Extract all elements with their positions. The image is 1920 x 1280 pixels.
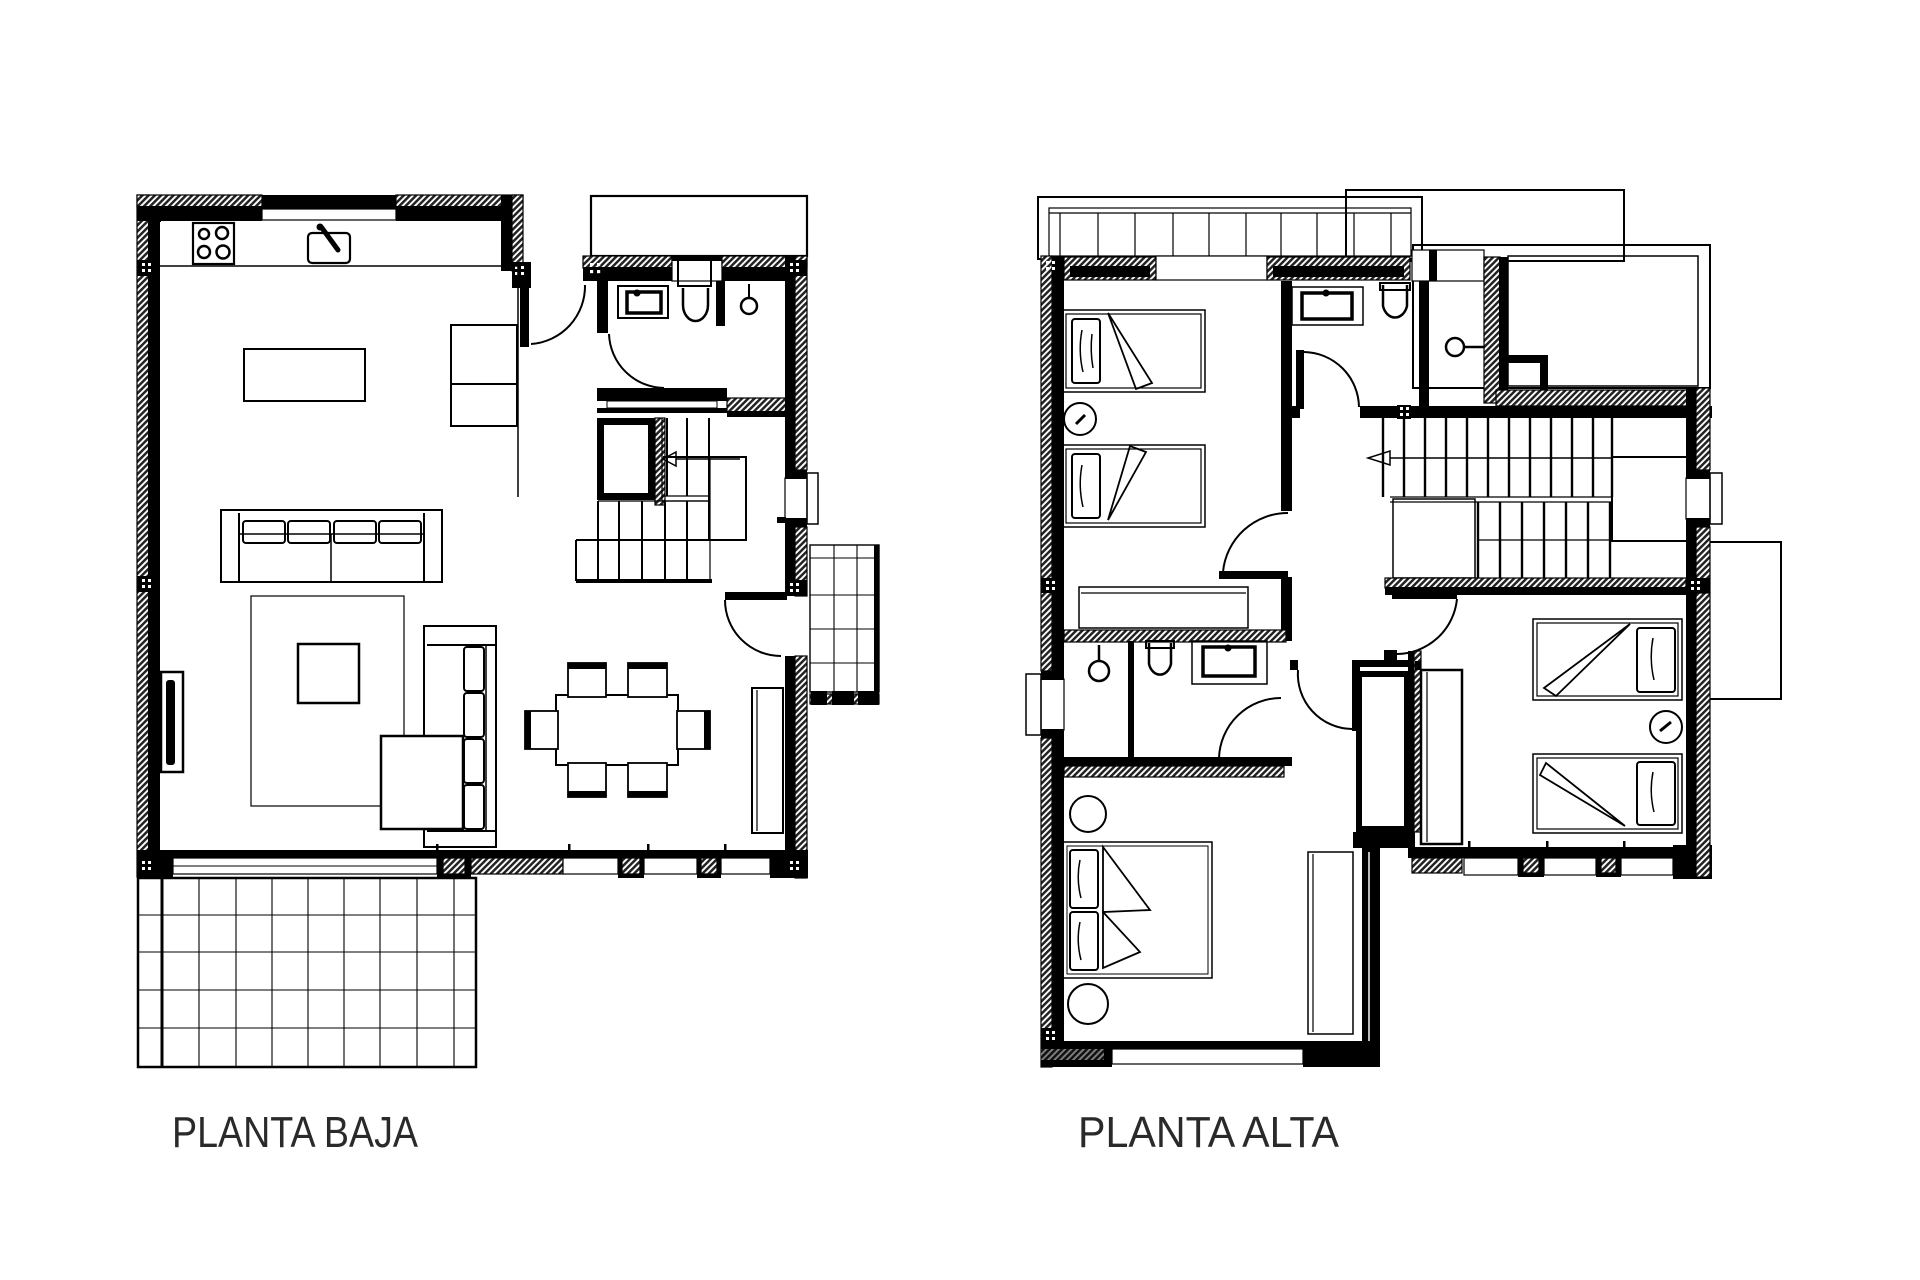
svg-text:PLANTA BAJA: PLANTA BAJA: [172, 1108, 419, 1157]
svg-text:PLANTA ALTA: PLANTA ALTA: [1078, 1108, 1340, 1157]
